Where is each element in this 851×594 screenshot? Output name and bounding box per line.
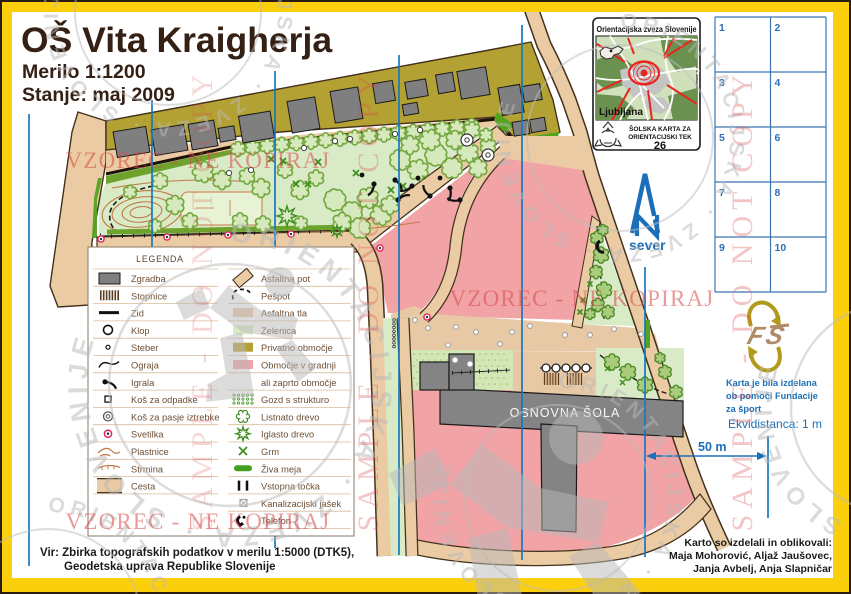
svg-text:10: 10 [775,242,787,254]
svg-text:5: 5 [719,132,725,144]
svg-text:Svetilka: Svetilka [131,430,164,440]
svg-text:Janja Avbelj, Anja Slapničar: Janja Avbelj, Anja Slapničar [693,563,832,575]
svg-text:2: 2 [775,22,781,34]
svg-text:LEGENDA: LEGENDA [136,254,184,264]
svg-text:Geodetska uprava Republike Slo: Geodetska uprava Republike Slovenije [64,561,276,573]
svg-text:Zgradba: Zgradba [131,274,166,284]
svg-text:Ograja: Ograja [131,361,160,371]
svg-text:8: 8 [775,187,781,199]
svg-text:Steber: Steber [131,343,158,353]
svg-text:Maja Mohorović, Aljaž Jaušovec: Maja Mohorović, Aljaž Jaušovec, [669,550,832,562]
svg-text:Gozd s strukturo: Gozd s strukturo [261,395,329,405]
svg-text:Klop: Klop [131,326,150,336]
svg-text:Iglasto drevo: Iglasto drevo [261,430,314,440]
svg-text:Igrala: Igrala [131,378,155,388]
svg-text:26: 26 [654,140,666,152]
svg-text:9: 9 [719,242,725,254]
svg-text:Listnato drevo: Listnato drevo [261,412,319,422]
svg-text:Ljubljana: Ljubljana [599,107,643,118]
svg-text:Živa meja: Živa meja [261,464,302,474]
svg-text:SAMPLE - DO NOT COPY: SAMPLE - DO NOT COPY [186,69,219,532]
svg-text:Karto so izdelali in oblikoval: Karto so izdelali in oblikovali: [684,537,832,549]
svg-text:SAMPLE - DO NOT COPY: SAMPLE - DO NOT COPY [352,69,385,532]
svg-text:SAMPLE - DO NOT COPY: SAMPLE - DO NOT COPY [726,69,759,532]
svg-text:50 m: 50 m [698,440,727,454]
svg-text:Plastnice: Plastnice [131,447,169,457]
svg-text:VZOREC - NE KOPIRAJ: VZOREC - NE KOPIRAJ [450,286,715,311]
svg-text:ŠOLSKA KARTA ZA: ŠOLSKA KARTA ZA [629,124,691,133]
svg-text:1: 1 [719,22,725,34]
svg-text:4: 4 [775,77,781,89]
svg-text:Grm: Grm [261,447,279,457]
svg-text:6: 6 [775,132,781,144]
